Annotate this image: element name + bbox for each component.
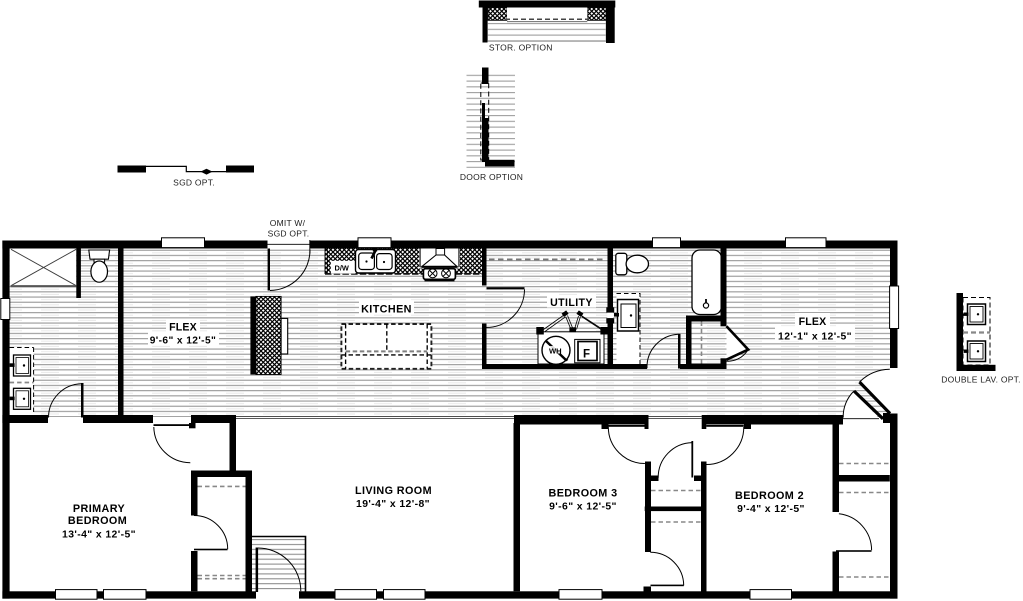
svg-text:WH: WH — [549, 346, 562, 355]
svg-text:19'-4" x 12'-8": 19'-4" x 12'-8" — [356, 499, 430, 510]
svg-text:OMIT W/: OMIT W/ — [270, 218, 306, 228]
svg-text:FLEX: FLEX — [169, 322, 197, 334]
svg-text:FLEX: FLEX — [799, 316, 827, 328]
svg-text:BEDROOM 2: BEDROOM 2 — [735, 490, 804, 502]
svg-text:SGD OPT.: SGD OPT. — [268, 228, 310, 238]
svg-text:DOOR OPTION: DOOR OPTION — [460, 172, 523, 182]
svg-text:BEDROOM 3: BEDROOM 3 — [549, 488, 618, 500]
svg-text:9'-6" x 12'-5": 9'-6" x 12'-5" — [150, 335, 217, 346]
svg-text:9'-4" x 12'-5": 9'-4" x 12'-5" — [737, 504, 805, 515]
svg-text:9'-6" x 12'-5": 9'-6" x 12'-5" — [549, 502, 617, 513]
svg-text:SGD OPT.: SGD OPT. — [173, 177, 215, 187]
svg-text:12'-1" x 12'-5": 12'-1" x 12'-5" — [778, 332, 852, 343]
svg-text:UTILITY: UTILITY — [550, 297, 593, 309]
svg-text:PRIMARY: PRIMARY — [73, 503, 126, 515]
svg-text:KITCHEN: KITCHEN — [361, 304, 412, 316]
svg-text:F: F — [583, 349, 590, 361]
svg-text:LIVING ROOM: LIVING ROOM — [355, 485, 432, 497]
svg-text:BEDROOM: BEDROOM — [68, 515, 127, 527]
svg-text:DOUBLE LAV. OPT.: DOUBLE LAV. OPT. — [941, 374, 1021, 384]
svg-text:13'-4" x 12'-5": 13'-4" x 12'-5" — [62, 530, 136, 541]
svg-text:D/W: D/W — [335, 264, 349, 273]
svg-text:STOR. OPTION: STOR. OPTION — [489, 43, 553, 53]
